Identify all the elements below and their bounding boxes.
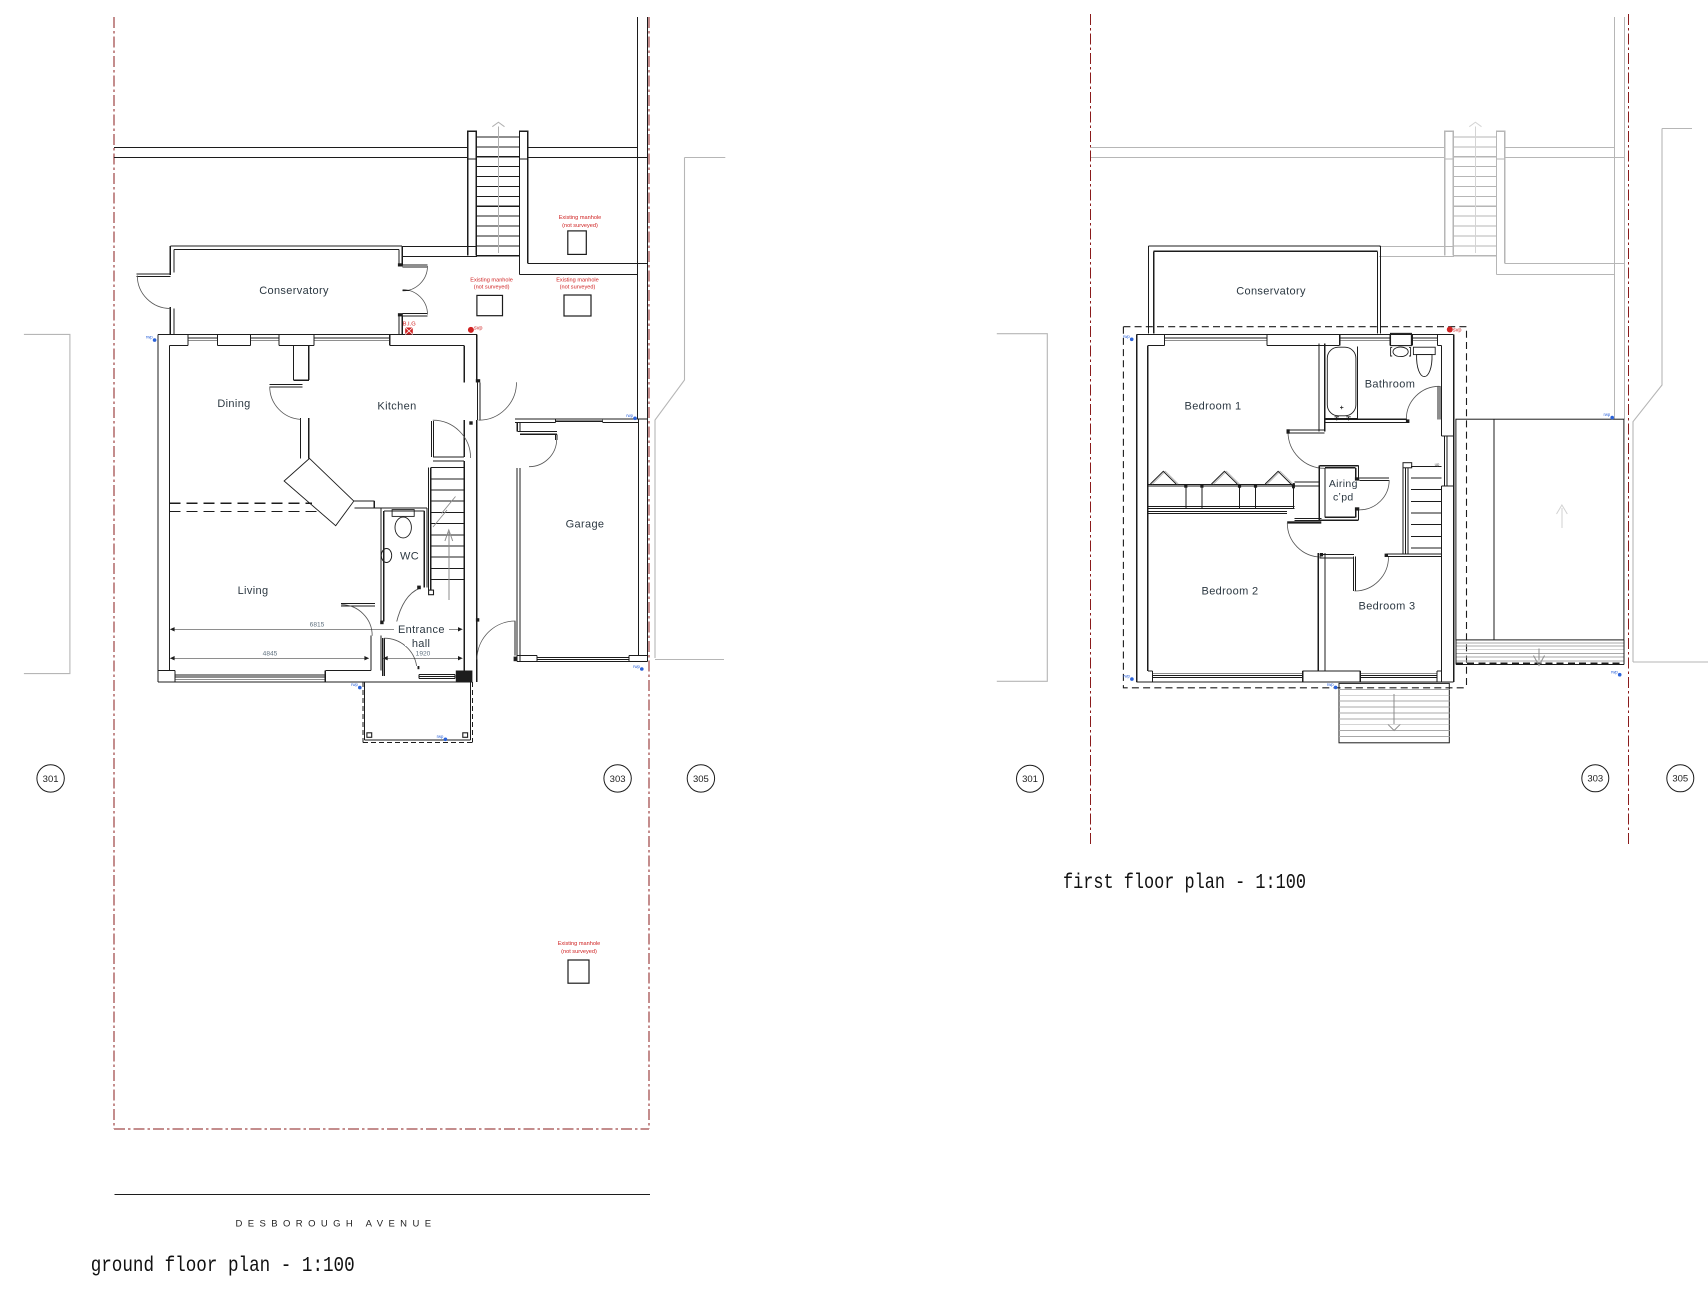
svg-text:Conservatory: Conservatory — [1236, 286, 1306, 298]
svg-text:Bedroom 3: Bedroom 3 — [1359, 601, 1416, 613]
svg-text:305: 305 — [693, 774, 709, 785]
svg-text:Conservatory: Conservatory — [259, 285, 329, 297]
svg-text:ground floor plan - 1:100: ground floor plan - 1:100 — [91, 1255, 355, 1278]
svg-text:305: 305 — [1672, 774, 1688, 785]
svg-text:rwp: rwp — [633, 664, 640, 669]
svg-text:303: 303 — [610, 774, 626, 785]
svg-text:1920: 1920 — [416, 650, 431, 657]
svg-text:Existing manhole: Existing manhole — [558, 941, 601, 947]
svg-text:cʼpd: cʼpd — [1333, 492, 1354, 504]
svg-text:first floor plan - 1:100: first floor plan - 1:100 — [1063, 872, 1306, 895]
svg-text:(not surveyed): (not surveyed) — [562, 223, 598, 229]
svg-text:(not surveyed): (not surveyed) — [560, 284, 596, 290]
svg-text:svp: svp — [1453, 327, 1462, 333]
svg-text:4845: 4845 — [263, 651, 278, 658]
svg-text:rwp: rwp — [1123, 334, 1130, 339]
svg-text:Living: Living — [238, 585, 269, 597]
svg-text:(not surveyed): (not surveyed) — [474, 284, 510, 290]
svg-text:Bedroom 2: Bedroom 2 — [1202, 586, 1259, 598]
svg-text:rwp: rwp — [437, 734, 444, 739]
svg-text:Existing manhole: Existing manhole — [556, 277, 599, 283]
svg-text:rwp: rwp — [1603, 412, 1610, 417]
svg-text:Airing: Airing — [1329, 478, 1358, 490]
svg-text:Existing manhole: Existing manhole — [470, 277, 513, 283]
svg-text:DESBOROUGH AVENUE: DESBOROUGH AVENUE — [236, 1219, 437, 1230]
svg-text:Kitchen: Kitchen — [377, 401, 416, 413]
svg-text:301: 301 — [43, 774, 59, 785]
svg-text:rwp: rwp — [146, 335, 153, 340]
svg-text:hall: hall — [412, 638, 431, 650]
svg-text:svp: svp — [474, 325, 483, 331]
svg-text:Dining: Dining — [217, 398, 250, 410]
svg-text:rwp: rwp — [1327, 682, 1334, 687]
svg-text:Bathroom: Bathroom — [1365, 379, 1416, 391]
svg-text:Bedroom 1: Bedroom 1 — [1185, 401, 1242, 413]
svg-text:(not surveyed): (not surveyed) — [561, 949, 597, 955]
svg-text:rwp: rwp — [1611, 669, 1618, 674]
svg-text:303: 303 — [1587, 774, 1603, 785]
svg-text:Entrance: Entrance — [398, 624, 445, 636]
svg-text:rwp: rwp — [351, 682, 358, 687]
svg-text:rwp: rwp — [1123, 674, 1130, 679]
svg-text:WC: WC — [400, 551, 419, 563]
svg-text:rwp: rwp — [626, 413, 633, 418]
svg-text:B.I.G: B.I.G — [403, 322, 417, 328]
svg-text:Garage: Garage — [566, 519, 605, 531]
svg-text:301: 301 — [1022, 774, 1038, 785]
svg-text:Existing manhole: Existing manhole — [559, 215, 602, 221]
svg-text:up: up — [1435, 462, 1440, 467]
svg-text:6815: 6815 — [310, 622, 325, 629]
